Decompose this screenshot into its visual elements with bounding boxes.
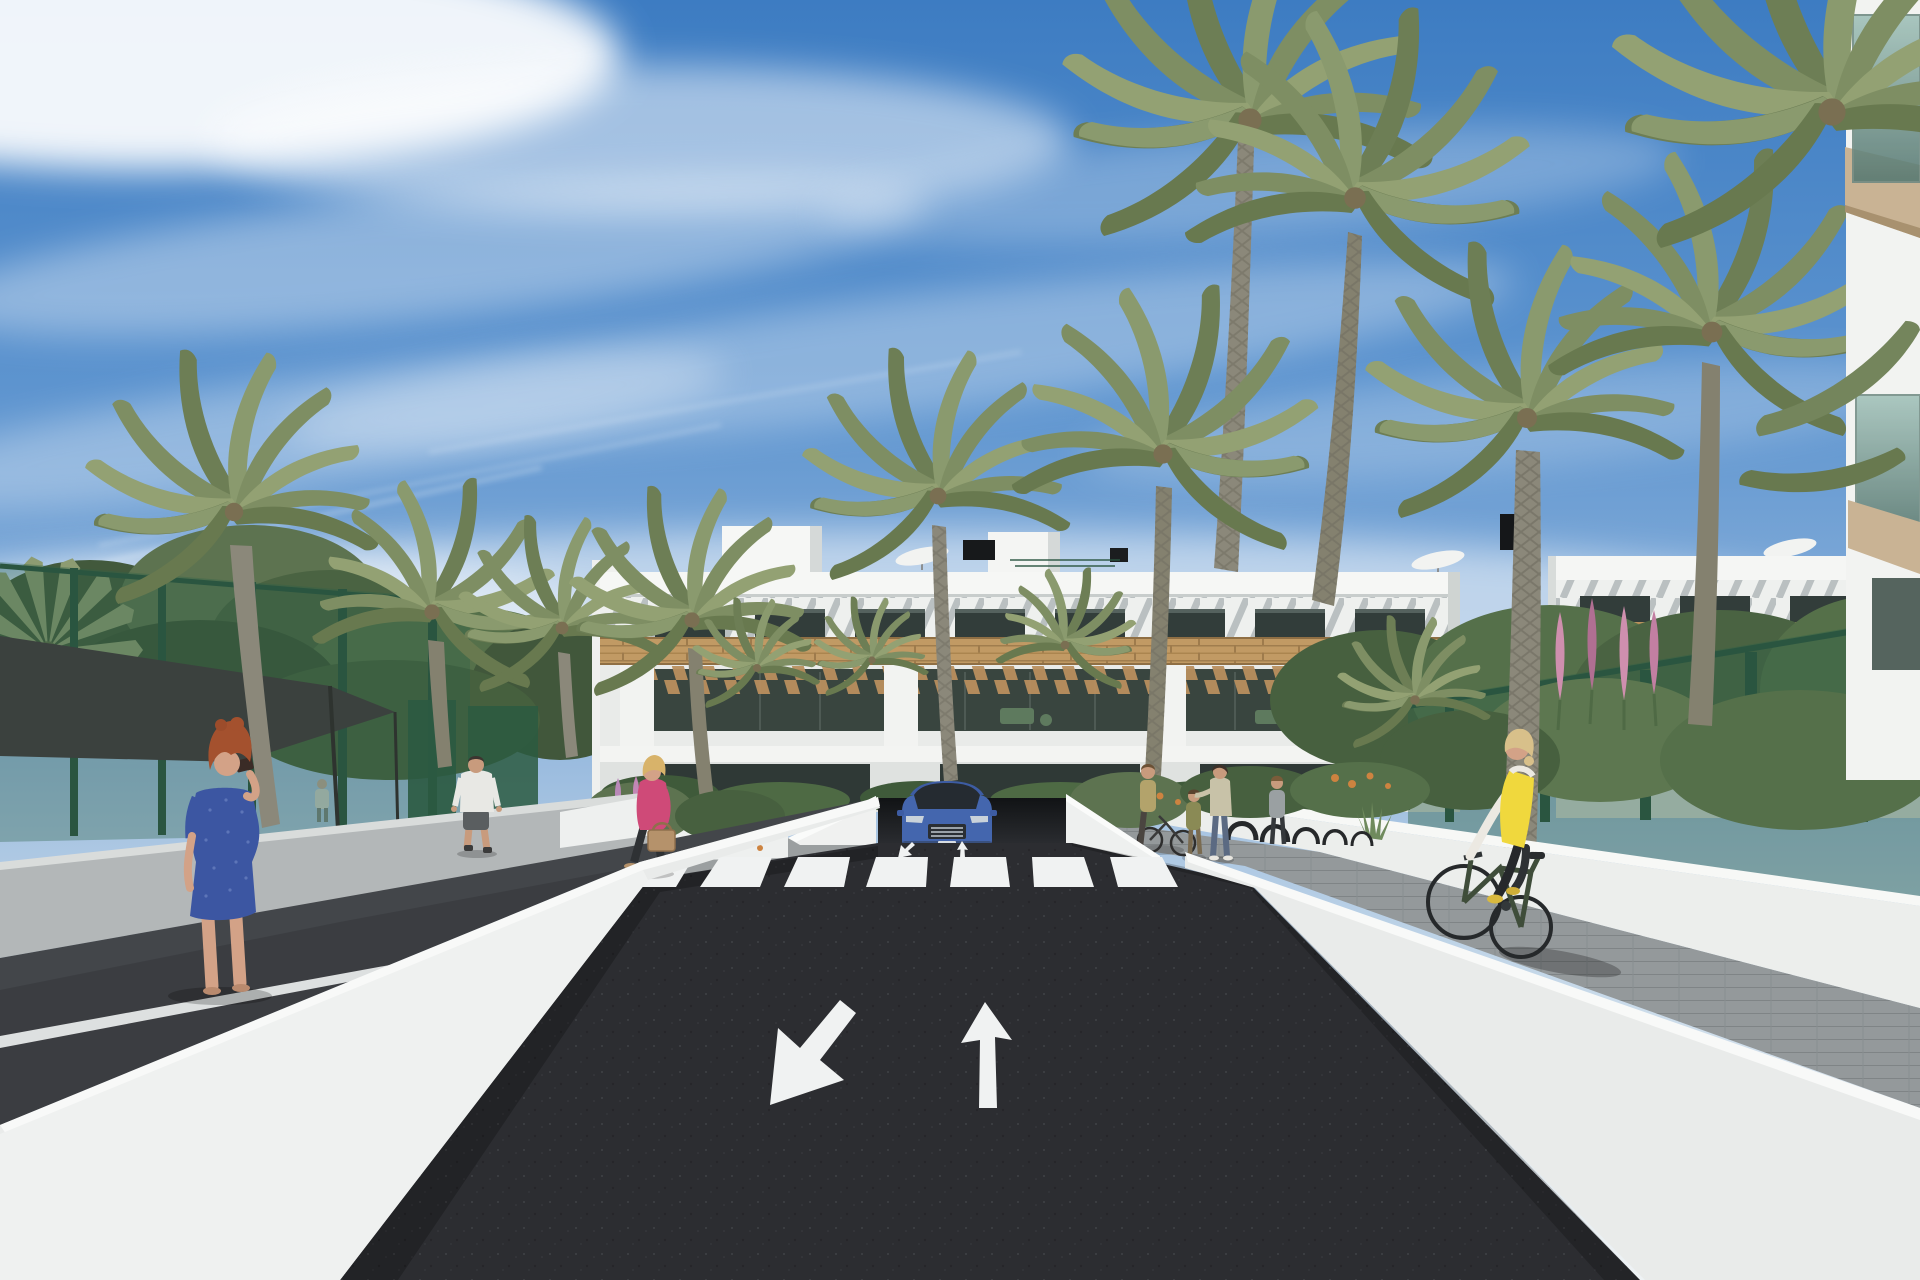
scene-svg [0,0,1920,1280]
car-headlight [970,816,988,823]
dress [190,788,259,920]
chimney-vent [963,540,995,560]
rendering-canvas [0,0,1920,1280]
car-headlight [906,816,924,823]
car-windshield [914,783,980,809]
handbag [648,830,675,851]
window [1872,578,1920,670]
